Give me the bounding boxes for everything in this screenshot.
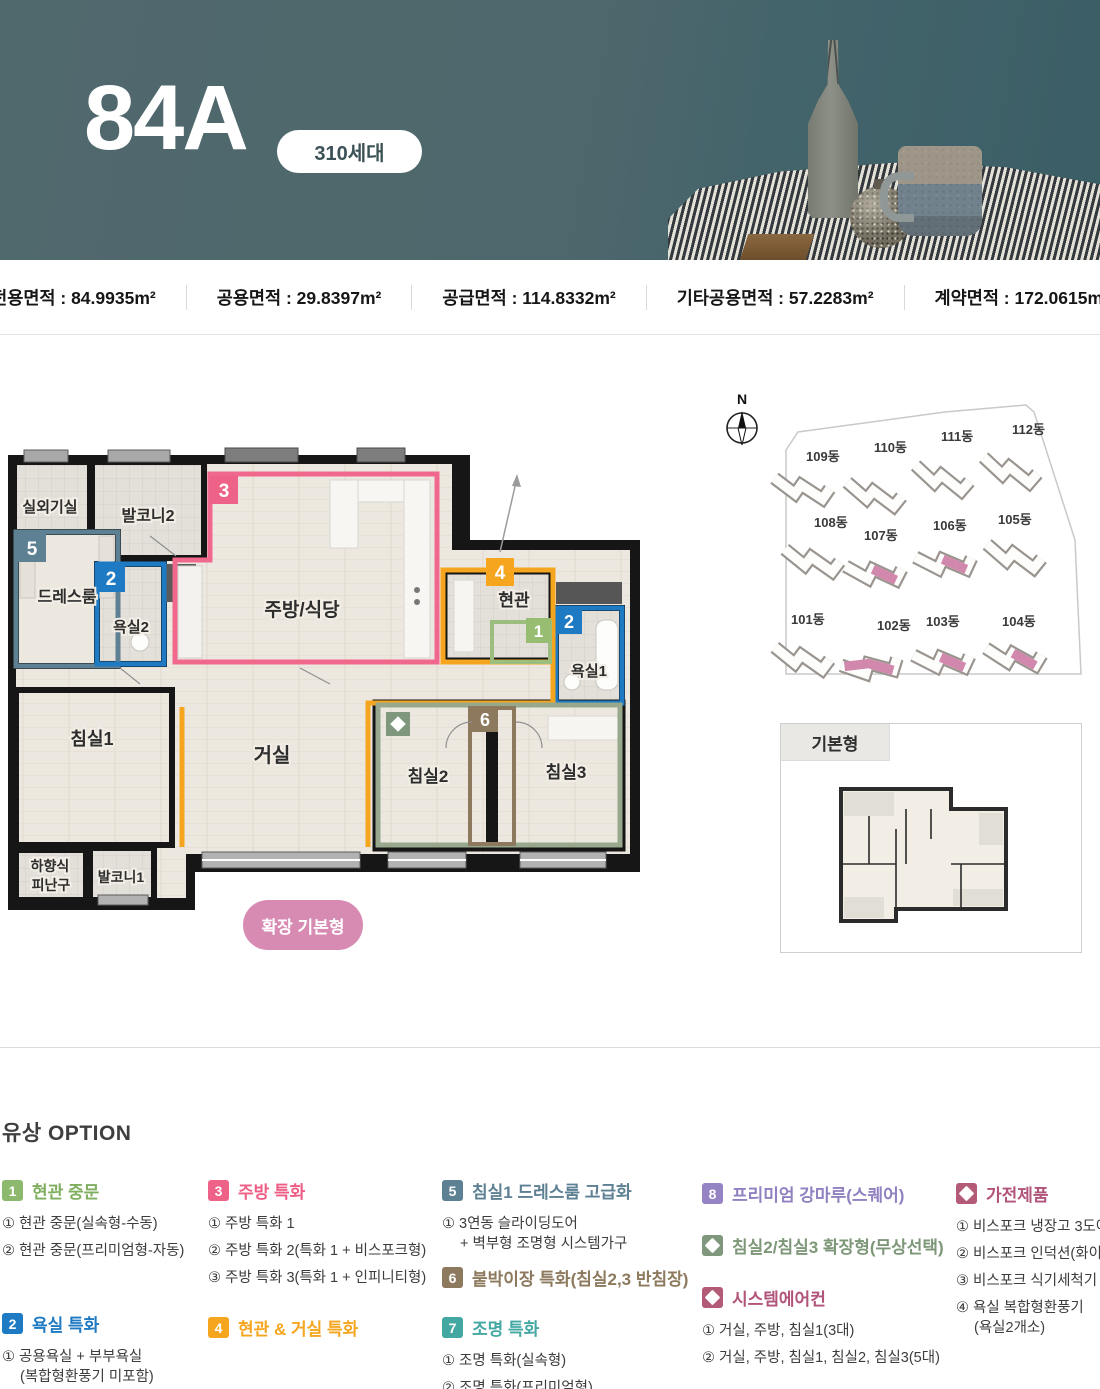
base-type-thumbnail <box>811 769 1051 939</box>
label-balcony1: 발코니1 <box>98 869 145 885</box>
option-item: ① 조명 특화(실속형) <box>442 1348 593 1375</box>
unit-type-title: 84A <box>84 72 247 164</box>
option-group-lighting: 7조명 특화 ① 조명 특화(실속형) ② 조명 특화(프리미엄형) <box>442 1315 593 1389</box>
option-group-system-aircon: 시스템에어컨 ① 거실, 주방, 침실1(3대) ② 거실, 주방, 침실1, … <box>702 1285 940 1372</box>
svg-text:2: 2 <box>564 612 574 632</box>
plan-badge-1: 1 <box>526 618 551 643</box>
option-item: ① 거실, 주방, 침실1(3대) <box>702 1318 940 1345</box>
option-item: ② 거실, 주방, 침실1, 침실2, 침실3(5대) <box>702 1345 940 1372</box>
shoe-closet <box>454 580 474 652</box>
header-banner: 84A 310세대 <box>0 0 1100 260</box>
floor-plan: 3 5 2 4 1 2 6 실외기실 <box>0 440 660 960</box>
option-group-bathroom: 2욕실 특화 ① 공용욕실 + 부부욕실 (복합형환풍기 미포함) <box>2 1311 154 1389</box>
svg-text:5: 5 <box>27 539 38 560</box>
option-item: ② 비스포크 인덕션(화이트) <box>956 1241 1100 1268</box>
option-title: 시스템에어컨 <box>732 1285 826 1310</box>
stove-burner <box>414 587 420 593</box>
option-title: 주방 특화 <box>238 1178 305 1203</box>
option-badge-3: 3 <box>208 1180 229 1201</box>
option-title: 조명 특화 <box>472 1315 539 1340</box>
options-section-title: 유상 OPTION <box>2 1117 131 1147</box>
building-108 <box>785 542 841 578</box>
kitchen-counter-left <box>330 480 358 548</box>
bed3-bed <box>548 716 618 740</box>
section-divider <box>0 1047 1100 1048</box>
option-item: ① 공용욕실 + 부부욕실 <box>2 1344 154 1371</box>
building-109 <box>775 469 832 506</box>
option-item: ① 현관 중문(실속형-수동) <box>2 1211 184 1238</box>
room-bed1 <box>16 690 172 845</box>
option-group-builtin-closet: 6붙박이장 특화(침실2,3 반침장) <box>442 1265 688 1290</box>
option-badge-5: 5 <box>442 1180 463 1201</box>
paid-options-section: 유상 OPTION 1현관 중문 ① 현관 중문(실속형-수동) ② 현관 중문… <box>0 1053 1100 1389</box>
label-building-110: 110동 <box>874 440 907 455</box>
building-105 <box>987 539 1042 573</box>
vase-bottle-photo <box>808 40 858 218</box>
diamond-icon-green <box>702 1235 723 1256</box>
site-boundary <box>786 405 1081 674</box>
label-building-101: 101동 <box>791 612 825 627</box>
svg-text:3: 3 <box>219 481 230 502</box>
area-supply: 공급면적 : 114.8332m² <box>412 285 646 310</box>
building-112 <box>984 454 1038 486</box>
option-group-bedroom-expansion: 침실2/침실3 확장형(무상선택) <box>702 1233 944 1258</box>
option-title: 프리미엄 강마루(스퀘어) <box>732 1181 904 1206</box>
plan-badge-3: 3 <box>210 476 238 504</box>
label-building-104: 104동 <box>1002 614 1036 629</box>
building-107 <box>846 550 905 594</box>
option-item: ② 주방 특화 2(특화 1 + 비스포크형) <box>208 1238 426 1265</box>
option-group-kitchen: 3주방 특화 ① 주방 특화 1 ② 주방 특화 2(특화 1 + 비스포크형)… <box>208 1178 426 1292</box>
label-building-109: 109동 <box>806 449 840 464</box>
expand-diamond-icon <box>386 712 410 736</box>
building-104 <box>986 636 1044 677</box>
label-kitchen: 주방/식당 <box>264 599 340 621</box>
option-badge-6: 6 <box>442 1267 463 1288</box>
kitchen-counter-side <box>404 480 430 658</box>
stove-burner <box>414 599 420 605</box>
option-item-note: + 벽부형 조명형 시스템가구 <box>442 1235 632 1254</box>
option-title: 욕실 특화 <box>32 1311 99 1336</box>
plan-badge-2-bath1: 2 <box>556 608 582 634</box>
area-exclusive: 전용면적 : 84.9935m² <box>0 285 187 310</box>
label-bed3: 침실3 <box>546 762 587 782</box>
building-110 <box>847 477 902 511</box>
option-badge-4: 4 <box>208 1317 229 1338</box>
compass-north: N <box>727 391 757 445</box>
duct-shaft <box>556 582 622 604</box>
label-building-108: 108동 <box>814 515 848 530</box>
plant-stem <box>825 32 833 84</box>
diamond-icon-maroon <box>702 1287 723 1308</box>
area-other-common: 기타공용면적 : 57.2283m² <box>647 285 905 310</box>
option-item: ③ 비스포크 식기세척기 <box>956 1268 1100 1295</box>
plan-badge-2-bath2: 2 <box>97 564 125 592</box>
plan-badge-5: 5 <box>18 534 46 562</box>
option-group-entry-living: 4현관 & 거실 특화 <box>208 1315 358 1340</box>
svg-text:1: 1 <box>534 622 543 641</box>
svg-text:2: 2 <box>106 569 117 590</box>
area-contract: 계약면적 : 172.0615m² <box>905 285 1100 310</box>
expand-type-badge[interactable]: 확장 기본형 <box>243 900 363 950</box>
label-evac1: 하향식 <box>31 858 70 874</box>
label-living: 거실 <box>254 744 291 767</box>
label-building-106: 106동 <box>933 518 967 533</box>
option-item: ① 3연동 슬라이딩도어 <box>442 1211 632 1238</box>
label-bed1: 침실1 <box>70 729 113 749</box>
label-dress: 드레스룸 <box>38 588 97 606</box>
label-building-103: 103동 <box>926 614 960 629</box>
label-evac2: 피난구 <box>32 877 71 893</box>
option-badge-7: 7 <box>442 1317 463 1338</box>
label-building-107: 107동 <box>864 528 898 543</box>
building-103 <box>913 637 972 682</box>
mug-photo <box>898 146 982 236</box>
option-badge-1: 1 <box>2 1180 23 1201</box>
option-title: 침실2/침실3 확장형(무상선택) <box>732 1233 944 1258</box>
svg-text:4: 4 <box>495 563 506 584</box>
option-title: 현관 & 거실 특화 <box>238 1315 358 1340</box>
label-entry: 현관 <box>498 591 530 610</box>
building-111 <box>916 462 970 494</box>
building-102 <box>841 641 901 688</box>
option-title: 가전제품 <box>986 1181 1049 1206</box>
label-bath2: 욕실2 <box>113 619 149 636</box>
units-count-badge: 310세대 <box>277 130 422 173</box>
option-group-premium-floor: 8프리미엄 강마루(스퀘어) <box>702 1181 904 1206</box>
option-item: ① 비스포크 냉장고 3도어 <box>956 1214 1100 1241</box>
svg-text:6: 6 <box>480 710 490 730</box>
building-101 <box>775 640 831 676</box>
option-group-appliances: 가전제품 ① 비스포크 냉장고 3도어 ② 비스포크 인덕션(화이트) ③ 비스… <box>956 1181 1100 1344</box>
option-item: ② 현관 중문(프리미엄형-자동) <box>2 1238 184 1265</box>
option-item-note: (복합형환풍기 미포함) <box>2 1368 154 1387</box>
label-outdoor: 실외기실 <box>22 498 77 516</box>
option-title: 현관 중문 <box>32 1178 99 1203</box>
site-plan: N 109동 110동 111동 112동 108동 107동 106동 105… <box>690 388 1100 688</box>
option-title: 붙박이장 특화(침실2,3 반침장) <box>472 1265 688 1290</box>
diamond-icon-maroon <box>956 1183 977 1204</box>
svg-text:N: N <box>737 391 747 407</box>
label-building-111: 111동 <box>941 429 973 444</box>
option-title: 침실1 드레스룸 고급화 <box>472 1178 632 1203</box>
label-bath1: 욕실1 <box>571 663 607 680</box>
option-group-dressroom: 5침실1 드레스룸 고급화 ① 3연동 슬라이딩도어 + 벽부형 조명형 시스템… <box>442 1178 632 1260</box>
area-common: 공용면적 : 29.8397m² <box>187 285 413 310</box>
plan-badge-4: 4 <box>486 558 514 586</box>
option-group-entrance-door: 1현관 중문 ① 현관 중문(실속형-수동) ② 현관 중문(프리미엄형-자동) <box>2 1178 184 1265</box>
plan-badge-6: 6 <box>472 706 498 732</box>
base-type-tab[interactable]: 기본형 <box>781 724 890 761</box>
option-item: ③ 주방 특화 3(특화 1 + 인피니티형) <box>208 1265 426 1292</box>
base-type-box: 기본형 <box>780 723 1082 953</box>
option-badge-2: 2 <box>2 1313 23 1334</box>
wood-table-photo <box>740 234 814 260</box>
label-bed2: 침실2 <box>408 766 449 786</box>
area-info-bar: 전용면적 : 84.9935m² 공용면적 : 29.8397m² 공급면적 :… <box>0 260 1100 335</box>
plant-stem <box>833 32 840 84</box>
building-106 <box>915 539 974 584</box>
option-badge-8: 8 <box>702 1183 723 1204</box>
option-item: ② 조명 특화(프리미엄형) <box>442 1375 593 1389</box>
label-building-102: 102동 <box>877 618 911 633</box>
mug-handle <box>880 172 914 222</box>
option-item: ① 주방 특화 1 <box>208 1211 426 1238</box>
option-item: ④ 욕실 복합형환풍기 <box>956 1295 1100 1322</box>
kitchen-cabinet <box>178 566 202 658</box>
page: 84A 310세대 전용면적 : 84.9935m² 공용면적 : 29.839… <box>0 0 1100 1389</box>
label-building-112: 112동 <box>1012 422 1045 437</box>
label-building-105: 105동 <box>998 512 1032 527</box>
label-balcony2: 발코니2 <box>121 507 174 525</box>
